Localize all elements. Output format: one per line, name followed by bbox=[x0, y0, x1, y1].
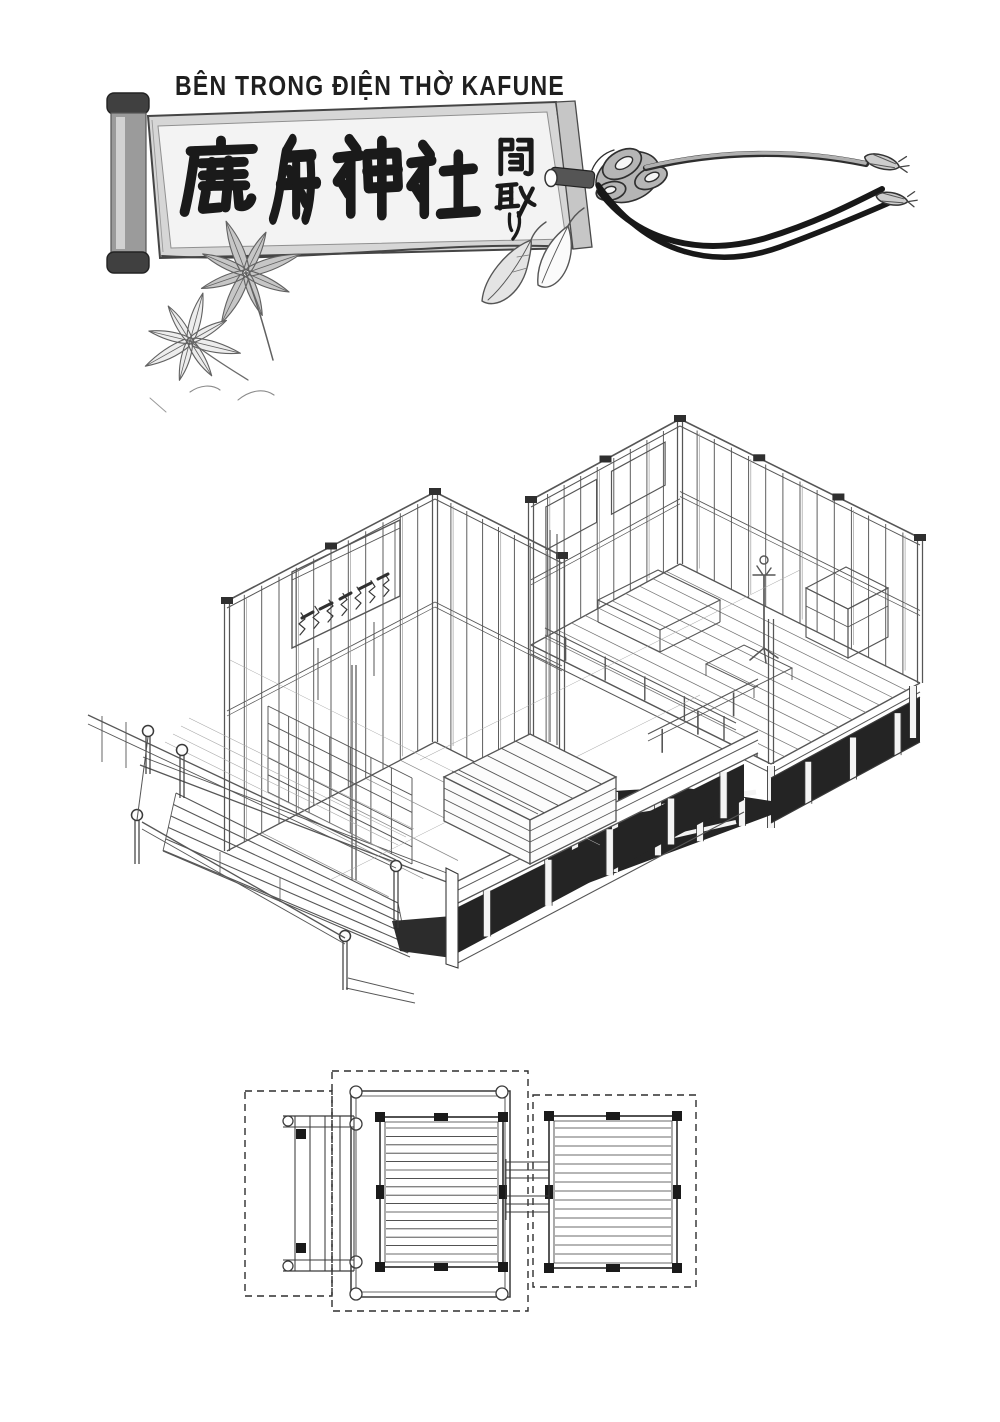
svg-text:BÊN TRONG ĐIỆN THỜ KAFUNE: BÊN TRONG ĐIỆN THỜ KAFUNE bbox=[175, 70, 565, 101]
